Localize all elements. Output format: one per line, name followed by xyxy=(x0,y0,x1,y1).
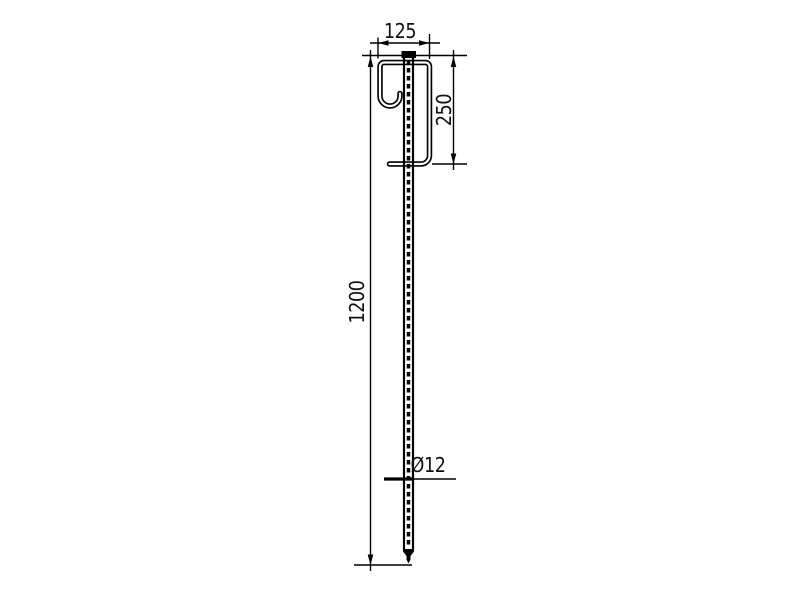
rod-pointed-tip xyxy=(403,549,414,564)
dimension-label-hook-height: 250 xyxy=(434,94,454,126)
rod-top-cap xyxy=(402,51,417,58)
dimension-label-total-length: 1200 xyxy=(347,280,367,323)
arrow-250-top xyxy=(451,57,457,68)
technical-drawing-svg xyxy=(0,0,800,600)
arrow-1200-top xyxy=(368,57,374,68)
drawing-canvas: 125 250 1200 Ø12 xyxy=(0,0,800,600)
arrow-125-right xyxy=(419,40,430,45)
arrow-250-bottom xyxy=(451,154,457,165)
dimension-label-diameter: Ø12 xyxy=(411,455,446,475)
rod xyxy=(402,51,417,564)
dimension-label-top-width: 125 xyxy=(384,21,416,41)
arrow-1200-bottom xyxy=(368,555,374,566)
